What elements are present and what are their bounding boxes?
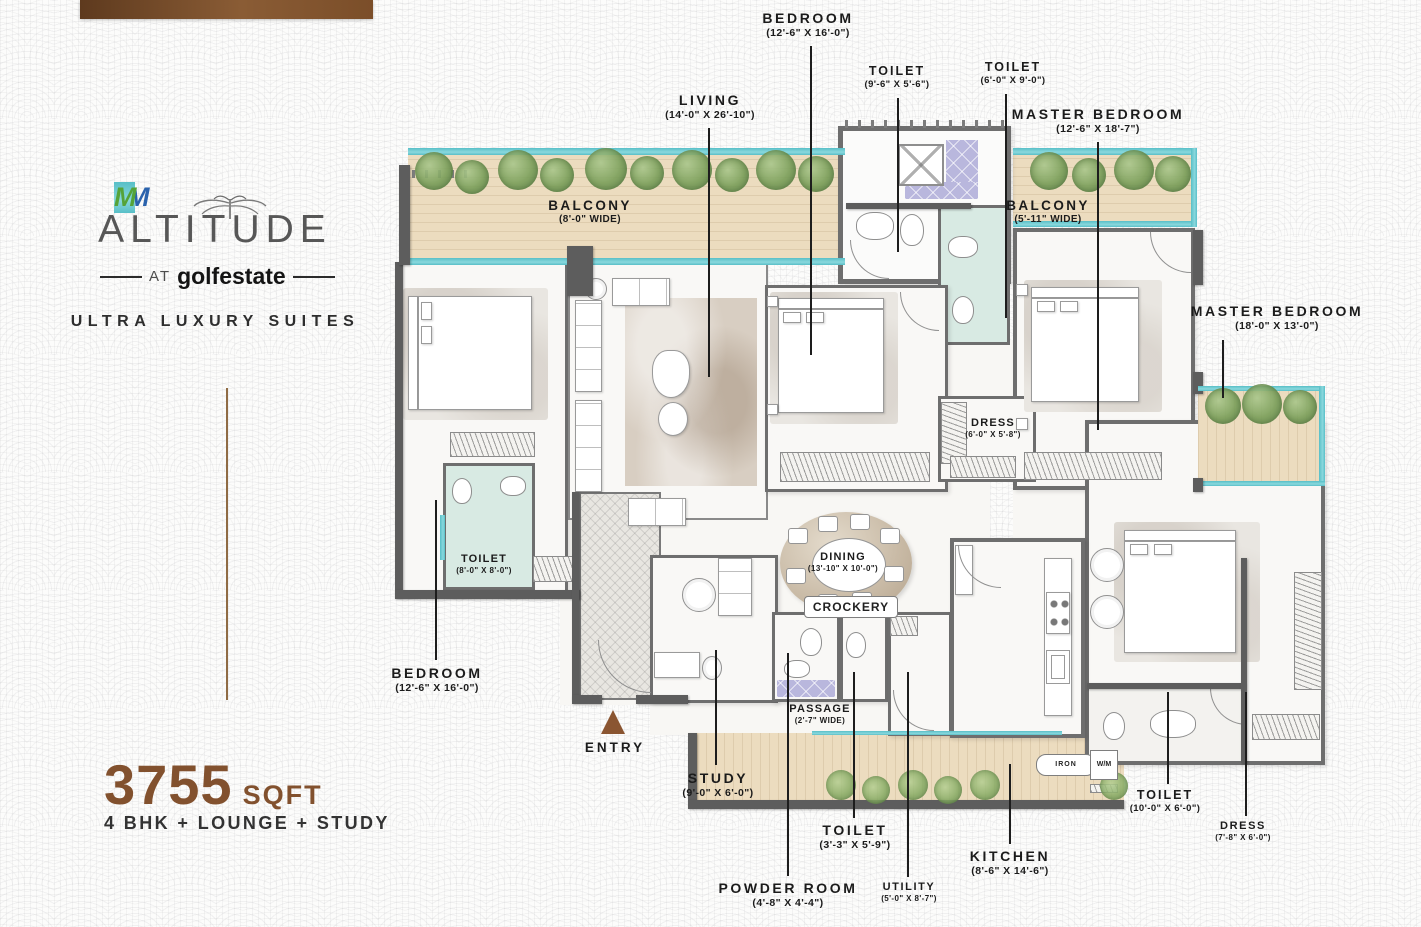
label-living: LIVING(14'-0" X 26'-10"): [665, 92, 755, 121]
leader-line-utility: [907, 672, 909, 877]
label-dining: DINING(13'-10" X 10'-0"): [808, 551, 878, 573]
leader-line-powder-room: [787, 653, 789, 876]
leader-line-master-bedroom-2: [1222, 340, 1224, 398]
label-bedroom-left: BEDROOM(12'-6" X 16'-0"): [391, 665, 482, 694]
label-master-bedroom-1: MASTER BEDROOM(12'-6" X 18'-7"): [1012, 106, 1185, 135]
leader-line-master-bedroom-1: [1097, 142, 1099, 430]
leader-line-dress-2: [1245, 692, 1247, 816]
label-toilet-left: TOILET(8'-0" X 8'-0"): [456, 553, 512, 575]
label-kitchen: KITCHEN(8'-6" X 14'-6"): [970, 848, 1050, 877]
labels-layer: BEDROOM(12'-6" X 16'-0")LIVING(14'-0" X …: [0, 0, 1421, 927]
label-toilet-bottom: TOILET(3'-3" X 5'-9"): [819, 822, 890, 851]
label-passage: PASSAGE(2'-7" WIDE): [789, 703, 850, 725]
leader-line-bedroom-left: [435, 500, 437, 660]
label-toilet-bottom-right: TOILET(10'-0" X 6'-0"): [1130, 788, 1201, 814]
leader-line-toilet-bottom-right: [1167, 692, 1169, 784]
label-master-bedroom-2: MASTER BEDROOM(18'-0" X 13'-0"): [1191, 303, 1364, 332]
label-bedroom-top: BEDROOM(12'-6" X 16'-0"): [762, 10, 853, 39]
label-balcony-left: BALCONY(8'-0" WIDE): [548, 198, 632, 225]
label-balcony-right: BALCONY(5'-11" WIDE): [1006, 198, 1090, 225]
label-dress-2: DRESS(7'-8" X 6'-0"): [1215, 820, 1271, 842]
leader-line-kitchen: [1009, 764, 1011, 844]
leader-line-living: [708, 128, 710, 377]
label-toilet-top-2: TOILET(6'-0" X 9'-0"): [981, 60, 1046, 86]
label-toilet-top: TOILET(9'-6" X 5'-6"): [865, 64, 930, 90]
label-powder-room: POWDER ROOM(4'-8" X 4'-4"): [718, 880, 857, 909]
leader-line-toilet-bottom: [853, 672, 855, 818]
floorplan-page: M3M ALTITUDE ATgolfestate ULTRA LUXURY S…: [0, 0, 1421, 927]
leader-line-toilet-top: [897, 98, 899, 252]
leader-line-bedroom-top: [810, 46, 812, 355]
label-study: STUDY(9'-0" X 6'-0"): [682, 770, 753, 799]
label-dress-1: DRESS(6'-0" X 5'-8"): [965, 417, 1021, 439]
leader-line-study: [715, 650, 717, 765]
label-utility: UTILITY(5'-0" X 8'-7"): [881, 881, 937, 903]
leader-line-toilet-top-2: [1005, 94, 1007, 318]
